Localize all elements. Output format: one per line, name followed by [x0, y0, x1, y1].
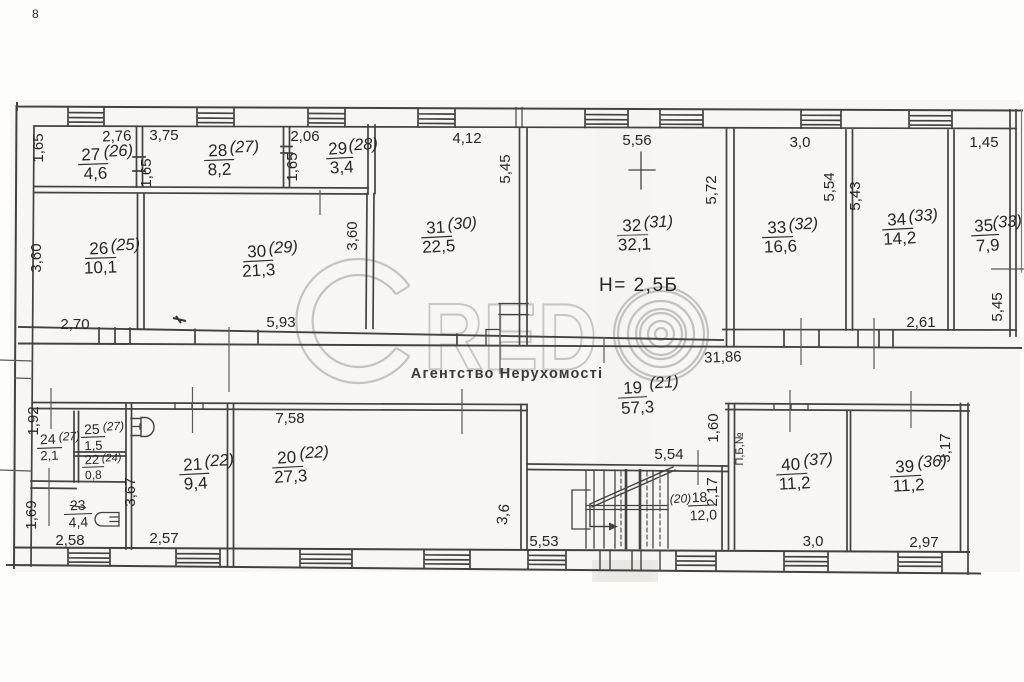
svg-text:2,57: 2,57: [149, 530, 178, 547]
svg-text:27,3: 27,3: [274, 466, 308, 487]
svg-text:1,65: 1,65: [30, 133, 47, 162]
svg-text:3,0: 3,0: [790, 134, 811, 151]
svg-text:3,0: 3,0: [803, 533, 824, 550]
svg-text:8: 8: [32, 7, 39, 21]
svg-text:5,45: 5,45: [497, 154, 514, 183]
svg-text:35: 35: [974, 216, 994, 236]
svg-text:12,0: 12,0: [689, 506, 717, 523]
svg-text:Н= 2,5Б: Н= 2,5Б: [599, 275, 678, 296]
svg-text:2,61: 2,61: [906, 314, 935, 331]
svg-text:5,45: 5,45: [989, 292, 1006, 321]
svg-text:16,6: 16,6: [764, 236, 798, 256]
svg-text:1,60: 1,60: [705, 413, 722, 442]
svg-text:7,9: 7,9: [975, 235, 1000, 255]
svg-text:22: 22: [84, 452, 99, 467]
svg-text:(25): (25): [110, 236, 140, 255]
svg-text:(21): (21): [649, 373, 679, 393]
svg-text:2,76: 2,76: [102, 127, 132, 145]
svg-text:(30): (30): [447, 214, 477, 234]
svg-text:11,2: 11,2: [892, 475, 925, 496]
svg-text:57,3: 57,3: [621, 397, 655, 418]
svg-text:22,5: 22,5: [422, 236, 456, 257]
svg-text:3,60: 3,60: [28, 243, 45, 272]
svg-text:(32): (32): [788, 215, 818, 234]
svg-text:40: 40: [781, 455, 801, 475]
svg-text:21: 21: [183, 455, 203, 475]
svg-text:Агентство Нерухомості: Агентство Нерухомості: [411, 366, 603, 382]
svg-text:34: 34: [887, 210, 907, 230]
svg-text:3,75: 3,75: [149, 127, 178, 144]
svg-text:5,54: 5,54: [821, 172, 838, 201]
svg-text:11,2: 11,2: [778, 473, 811, 494]
svg-text:(31): (31): [643, 213, 673, 232]
svg-text:28: 28: [208, 141, 228, 161]
svg-text:5,93: 5,93: [266, 314, 295, 331]
svg-text:5,43: 5,43: [847, 181, 864, 210]
svg-text:7,58: 7,58: [275, 410, 304, 427]
svg-text:П,Б,№: П,Б,№: [734, 432, 746, 465]
svg-text:31,86: 31,86: [704, 348, 742, 366]
svg-text:39: 39: [895, 457, 915, 477]
svg-text:3,4: 3,4: [329, 157, 354, 177]
svg-text:(22): (22): [204, 451, 234, 471]
svg-text:(20): (20): [670, 491, 692, 506]
svg-text:2,06: 2,06: [290, 128, 319, 145]
svg-text:1,5: 1,5: [84, 438, 103, 454]
svg-text:(27): (27): [58, 429, 80, 444]
svg-text:33: 33: [767, 218, 787, 238]
svg-text:30: 30: [247, 242, 267, 262]
svg-text:32,1: 32,1: [618, 234, 652, 254]
svg-text:3,6: 3,6: [494, 503, 514, 526]
svg-text:2,58: 2,58: [55, 532, 84, 549]
svg-text:5,54: 5,54: [654, 446, 683, 463]
svg-text:8,2: 8,2: [207, 160, 231, 180]
svg-text:19: 19: [623, 378, 643, 398]
svg-text:14,2: 14,2: [883, 228, 917, 249]
svg-text:(27): (27): [229, 138, 259, 157]
svg-text:1,69: 1,69: [23, 500, 40, 529]
svg-text:26: 26: [89, 239, 109, 259]
svg-text:2,70: 2,70: [60, 316, 89, 333]
svg-text:(33): (33): [908, 206, 938, 226]
svg-text:23: 23: [70, 497, 86, 514]
svg-text:3,17: 3,17: [937, 433, 954, 462]
svg-text:4,4: 4,4: [68, 514, 88, 531]
svg-text:32: 32: [622, 216, 642, 236]
svg-text:21,3: 21,3: [242, 260, 276, 281]
svg-text:4,12: 4,12: [452, 130, 481, 147]
svg-text:(33): (33): [992, 212, 1022, 232]
svg-text:5,56: 5,56: [622, 132, 651, 149]
svg-text:(27): (27): [103, 419, 125, 434]
svg-text:10,1: 10,1: [84, 257, 118, 277]
svg-text:31: 31: [426, 218, 446, 238]
svg-text:27: 27: [81, 145, 101, 165]
svg-text:(37): (37): [803, 450, 833, 470]
svg-text:29: 29: [328, 139, 348, 159]
svg-text:(29): (29): [268, 238, 298, 258]
svg-text:(24): (24): [102, 452, 122, 465]
svg-text:20: 20: [277, 448, 297, 468]
svg-text:3,67: 3,67: [122, 477, 139, 506]
svg-text:2,97: 2,97: [909, 534, 938, 551]
svg-text:24: 24: [40, 431, 56, 448]
svg-text:5,53: 5,53: [529, 533, 558, 550]
svg-text:0,8: 0,8: [85, 468, 102, 483]
svg-text:1,45: 1,45: [969, 134, 998, 151]
svg-text:5,72: 5,72: [703, 175, 720, 204]
svg-text:4,6: 4,6: [83, 164, 107, 184]
svg-text:2,1: 2,1: [40, 448, 59, 464]
svg-text:(22): (22): [299, 443, 329, 463]
svg-text:1,65: 1,65: [284, 152, 301, 181]
svg-text:25: 25: [84, 421, 100, 438]
svg-text:3,60: 3,60: [344, 221, 361, 250]
svg-text:1,65: 1,65: [138, 158, 155, 187]
svg-text:2,17: 2,17: [704, 477, 721, 506]
svg-text:9,4: 9,4: [183, 473, 208, 493]
svg-text:(28): (28): [348, 135, 378, 155]
